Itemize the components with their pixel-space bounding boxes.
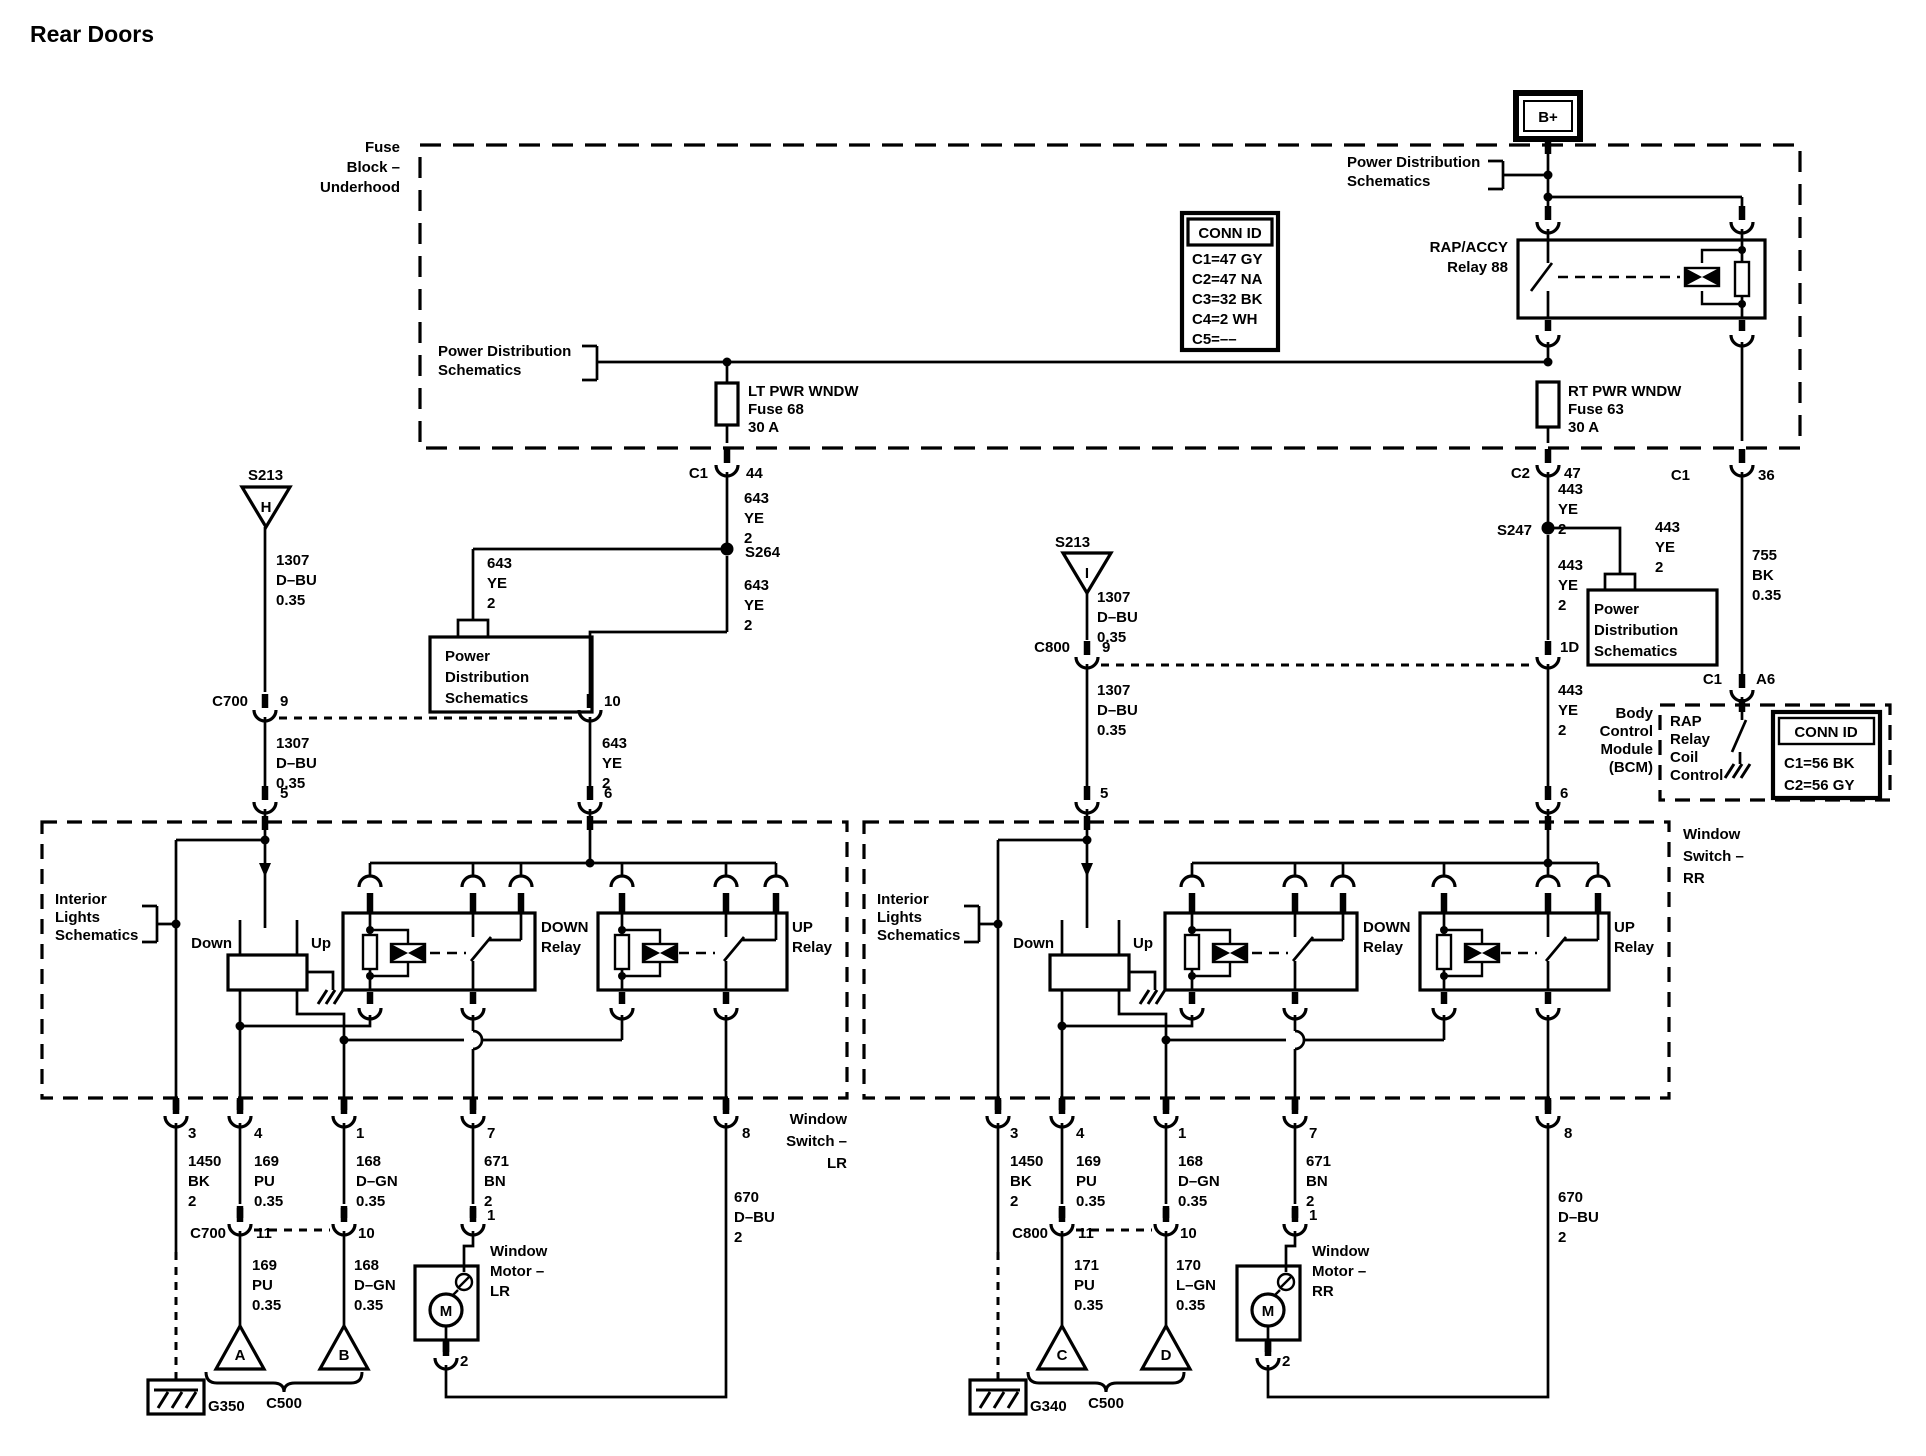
svg-text:D–GN: D–GN — [354, 1277, 396, 1294]
window-motor-rr: M — [1237, 1266, 1300, 1340]
splice-pack-s213-h: S213 H — [242, 467, 290, 527]
svg-text:443: 443 — [1558, 557, 1583, 574]
svg-text:1307: 1307 — [1097, 589, 1130, 606]
svg-text:YE: YE — [1558, 577, 1578, 594]
svg-text:Switch –: Switch – — [786, 1133, 847, 1150]
svg-text:Down: Down — [1013, 935, 1054, 952]
ground-icon-g340 — [970, 1380, 1026, 1414]
svg-text:H: H — [261, 499, 272, 516]
svg-text:Down: Down — [191, 935, 232, 952]
svg-text:UP: UP — [1614, 919, 1635, 936]
svg-text:Block –: Block – — [347, 159, 400, 176]
svg-text:YE: YE — [1655, 539, 1675, 556]
svg-text:11: 11 — [1078, 1225, 1094, 1242]
svg-text:D–BU: D–BU — [1558, 1209, 1599, 1226]
svg-text:S247: S247 — [1497, 522, 1532, 539]
svg-text:Schematics: Schematics — [1347, 173, 1430, 190]
pin-36: 36 — [1758, 467, 1775, 484]
svg-text:C500: C500 — [266, 1395, 302, 1412]
svg-text:RR: RR — [1312, 1283, 1334, 1300]
svg-text:0.35: 0.35 — [252, 1297, 281, 1314]
connector-c800-label: C800 — [1034, 639, 1070, 656]
svg-text:Fuse 68: Fuse 68 — [748, 401, 804, 418]
pin-9: 9 — [1102, 639, 1110, 656]
bcm: Body Control Module (BCM) RAP Relay Coil… — [1600, 705, 1890, 800]
svg-text:BN: BN — [1306, 1173, 1328, 1190]
pin-5: 5 — [280, 785, 288, 802]
svg-text:Power: Power — [445, 648, 490, 665]
c500-brace — [206, 1372, 362, 1392]
down-relay-lr — [343, 913, 535, 990]
svg-text:Switch –: Switch – — [1683, 848, 1744, 865]
svg-text:(BCM): (BCM) — [1609, 759, 1653, 776]
svg-text:1307: 1307 — [276, 735, 309, 752]
svg-text:Relay: Relay — [1363, 939, 1404, 956]
page-title: Rear Doors — [30, 21, 154, 47]
svg-text:B: B — [339, 1347, 350, 1364]
svg-text:Schematics: Schematics — [445, 690, 528, 707]
svg-text:2: 2 — [487, 595, 495, 612]
svg-text:RT PWR WNDW: RT PWR WNDW — [1568, 383, 1682, 400]
svg-text:168: 168 — [1178, 1153, 1203, 1170]
svg-text:Distribution: Distribution — [445, 669, 529, 686]
svg-text:S213: S213 — [248, 467, 283, 484]
svg-text:643: 643 — [602, 735, 627, 752]
svg-text:PU: PU — [1076, 1173, 1097, 1190]
svg-text:0.35: 0.35 — [1076, 1193, 1105, 1210]
svg-text:670: 670 — [1558, 1189, 1583, 1206]
svg-text:C5=––: C5=–– — [1192, 331, 1237, 348]
up-relay-blade — [724, 937, 744, 961]
svg-text:D–BU: D–BU — [276, 755, 317, 772]
svg-text:BN: BN — [484, 1173, 506, 1190]
svg-text:643: 643 — [744, 490, 769, 507]
svg-text:Interior: Interior — [877, 891, 929, 908]
pin-47: 47 — [1564, 465, 1581, 482]
svg-text:C2=47 NA: C2=47 NA — [1192, 271, 1263, 288]
svg-text:L–GN: L–GN — [1176, 1277, 1216, 1294]
pin-a6: A6 — [1756, 671, 1775, 688]
svg-text:443: 443 — [1655, 519, 1680, 536]
window-switch-rr: Window Switch – RR Interior Lights Schem… — [864, 816, 1744, 1142]
svg-text:170: 170 — [1176, 1257, 1201, 1274]
pin-9: 9 — [280, 693, 288, 710]
svg-text:443: 443 — [1558, 682, 1583, 699]
svg-text:Module: Module — [1601, 741, 1654, 758]
svg-text:670: 670 — [734, 1189, 759, 1206]
svg-text:Control: Control — [1670, 767, 1723, 784]
svg-text:Relay 88: Relay 88 — [1447, 259, 1508, 276]
svg-text:Motor –: Motor – — [1312, 1263, 1366, 1280]
svg-text:2: 2 — [1010, 1193, 1018, 1210]
svg-text:YE: YE — [487, 575, 507, 592]
svg-text:Window: Window — [490, 1243, 548, 1260]
svg-text:LR: LR — [490, 1283, 510, 1300]
svg-text:YE: YE — [744, 597, 764, 614]
svg-text:S264: S264 — [745, 544, 781, 561]
svg-text:D–BU: D–BU — [276, 572, 317, 589]
svg-text:Underhood: Underhood — [320, 179, 400, 196]
svg-text:1: 1 — [356, 1125, 364, 1142]
down-relay-coil-icon — [391, 944, 425, 962]
svg-text:169: 169 — [254, 1153, 279, 1170]
svg-text:2: 2 — [460, 1353, 468, 1370]
svg-text:Motor –: Motor – — [490, 1263, 544, 1280]
svg-text:443: 443 — [1558, 481, 1583, 498]
svg-text:2: 2 — [734, 1229, 742, 1246]
svg-text:168: 168 — [354, 1257, 379, 1274]
power-distribution-box-right: Power Distribution Schematics — [1588, 590, 1717, 665]
svg-text:755: 755 — [1752, 547, 1777, 564]
power-distribution-box-left: Power Distribution Schematics — [430, 637, 592, 712]
pin-10: 10 — [604, 693, 621, 710]
svg-text:30 A: 30 A — [748, 419, 779, 436]
bcm-ground-icon — [1725, 764, 1750, 778]
svg-text:Power: Power — [1594, 601, 1639, 618]
svg-text:DOWN: DOWN — [1363, 919, 1411, 936]
svg-text:CONN ID: CONN ID — [1794, 724, 1858, 741]
down-relay-blade — [471, 937, 491, 961]
svg-text:YE: YE — [744, 510, 764, 527]
feed-arrow-icon — [259, 863, 271, 877]
svg-text:Schematics: Schematics — [438, 362, 521, 379]
svg-text:C700: C700 — [190, 1225, 226, 1242]
svg-text:UP: UP — [792, 919, 813, 936]
svg-text:BK: BK — [188, 1173, 210, 1190]
svg-text:C1=47 GY: C1=47 GY — [1192, 251, 1262, 268]
svg-text:RAP: RAP — [1670, 713, 1702, 730]
svg-text:D–BU: D–BU — [734, 1209, 775, 1226]
svg-text:Fuse 63: Fuse 63 — [1568, 401, 1624, 418]
pin-1d: 1D — [1560, 639, 1579, 656]
svg-text:D–GN: D–GN — [356, 1173, 398, 1190]
svg-text:YE: YE — [1558, 501, 1578, 518]
svg-text:Distribution: Distribution — [1594, 622, 1678, 639]
svg-text:C1=56 BK: C1=56 BK — [1784, 755, 1855, 772]
down-relay-blade — [1293, 937, 1313, 961]
svg-text:RR: RR — [1683, 870, 1705, 887]
svg-text:2: 2 — [1282, 1353, 1290, 1370]
svg-text:C2=56 GY: C2=56 GY — [1784, 777, 1854, 794]
lr-bottom: 1450 BK 2 G350 169 PU 0.35 168 D–GN 0.35… — [148, 1123, 775, 1415]
c500-brace — [1028, 1372, 1184, 1392]
motor-m: M — [1262, 1303, 1275, 1320]
svg-text:8: 8 — [1564, 1125, 1572, 1142]
svg-text:C4=2 WH: C4=2 WH — [1192, 311, 1257, 328]
bcm-switch-blade — [1732, 720, 1746, 752]
svg-text:Schematics: Schematics — [1594, 643, 1677, 660]
svg-text:10: 10 — [358, 1225, 375, 1242]
diagram-title: Rear Doors — [30, 21, 154, 47]
svg-text:Relay: Relay — [541, 939, 582, 956]
svg-text:3: 3 — [1010, 1125, 1018, 1142]
svg-text:0.35: 0.35 — [276, 592, 305, 609]
conn-id-bcm: CONN ID C1=56 BK C2=56 GY — [1773, 712, 1880, 798]
svg-text:671: 671 — [484, 1153, 509, 1170]
svg-text:0.35: 0.35 — [1176, 1297, 1205, 1314]
svg-text:11: 11 — [256, 1225, 272, 1242]
relay-coil-icon — [1685, 268, 1719, 286]
svg-text:PU: PU — [252, 1277, 273, 1294]
svg-text:YE: YE — [1558, 702, 1578, 719]
svg-text:1: 1 — [487, 1207, 495, 1224]
svg-text:1450: 1450 — [188, 1153, 221, 1170]
battery-terminal: B+ — [1516, 93, 1580, 139]
svg-text:2: 2 — [1558, 521, 1566, 538]
svg-text:2: 2 — [188, 1193, 196, 1210]
svg-text:2: 2 — [1558, 597, 1566, 614]
svg-text:YE: YE — [602, 755, 622, 772]
svg-text:Coil: Coil — [1670, 749, 1698, 766]
svg-text:3: 3 — [188, 1125, 196, 1142]
svg-text:Window: Window — [1312, 1243, 1370, 1260]
switch-ground-icon — [1140, 990, 1165, 1004]
svg-text:Body: Body — [1616, 705, 1654, 722]
svg-text:0.35: 0.35 — [254, 1193, 283, 1210]
svg-text:Up: Up — [311, 935, 331, 952]
svg-text:C3=32 BK: C3=32 BK — [1192, 291, 1263, 308]
svg-text:Interior: Interior — [55, 891, 107, 908]
svg-text:171: 171 — [1074, 1257, 1099, 1274]
svg-text:2: 2 — [744, 617, 752, 634]
rap-accy-relay: RAP/ACCY Relay 88 — [1430, 239, 1765, 318]
breaker-icon — [1280, 1276, 1292, 1288]
svg-text:1: 1 — [1309, 1207, 1317, 1224]
svg-text:D–BU: D–BU — [1097, 609, 1138, 626]
svg-text:BK: BK — [1010, 1173, 1032, 1190]
svg-text:Window: Window — [790, 1111, 848, 1128]
relay-label: RAP/ACCY — [1430, 239, 1508, 256]
svg-text:10: 10 — [1180, 1225, 1197, 1242]
fuse-block-label: Fuse — [365, 139, 400, 156]
svg-text:A: A — [235, 1347, 246, 1364]
svg-text:PU: PU — [1074, 1277, 1095, 1294]
svg-text:Up: Up — [1133, 935, 1153, 952]
connector-c1-label: C1 — [689, 465, 708, 482]
svg-text:LT PWR WNDW: LT PWR WNDW — [748, 383, 859, 400]
svg-text:0.35: 0.35 — [1074, 1297, 1103, 1314]
breaker-icon — [458, 1276, 470, 1288]
pin-6: 6 — [604, 785, 612, 802]
svg-text:4: 4 — [1076, 1125, 1085, 1142]
svg-text:0.35: 0.35 — [1752, 587, 1781, 604]
down-relay-coil-icon — [1213, 944, 1247, 962]
svg-text:Lights: Lights — [877, 909, 922, 926]
svg-text:643: 643 — [487, 555, 512, 572]
svg-text:Power Distribution: Power Distribution — [1347, 154, 1480, 171]
up-relay-blade — [1546, 937, 1566, 961]
svg-text:0.35: 0.35 — [1097, 722, 1126, 739]
interior-lights-ref-rr: Interior Lights Schematics — [877, 891, 998, 944]
power-distribution-ref-left: Power Distribution Schematics — [438, 343, 597, 380]
svg-text:LR: LR — [827, 1155, 847, 1172]
svg-text:671: 671 — [1306, 1153, 1331, 1170]
rocker-switch-lr: Down Up — [191, 920, 343, 1004]
switch-ground-icon — [318, 990, 343, 1004]
svg-text:DOWN: DOWN — [541, 919, 589, 936]
svg-text:643: 643 — [744, 577, 769, 594]
svg-text:I: I — [1085, 565, 1089, 582]
up-relay-coil-icon — [1465, 944, 1499, 962]
svg-text:C: C — [1057, 1347, 1068, 1364]
svg-text:Schematics: Schematics — [55, 927, 138, 944]
svg-text:Relay: Relay — [792, 939, 833, 956]
interior-lights-ref-lr: Interior Lights Schematics — [55, 891, 176, 944]
rocker-switch-rr: Down Up — [1013, 920, 1165, 1004]
svg-text:C800: C800 — [1012, 1225, 1048, 1242]
svg-text:Window: Window — [1683, 826, 1741, 843]
ground-icon-g350 — [148, 1380, 204, 1414]
pin-6: 6 — [1560, 785, 1568, 802]
svg-text:168: 168 — [356, 1153, 381, 1170]
svg-text:S213: S213 — [1055, 534, 1090, 551]
motor-m: M — [440, 1303, 453, 1320]
svg-text:1: 1 — [1178, 1125, 1186, 1142]
conn-id-header: CONN ID — [1198, 225, 1262, 242]
up-relay-lr — [598, 913, 787, 990]
rt-pwr-wndw-fuse: RT PWR WNDW Fuse 63 30 A — [1537, 382, 1682, 443]
relay-resistor-icon — [1735, 262, 1749, 296]
svg-text:Schematics: Schematics — [877, 927, 960, 944]
up-relay-coil-icon — [643, 944, 677, 962]
pin-44: 44 — [746, 465, 763, 482]
svg-text:B+: B+ — [1538, 109, 1558, 126]
lt-pwr-wndw-fuse: LT PWR WNDW Fuse 68 30 A — [716, 362, 859, 443]
svg-text:D: D — [1161, 1347, 1172, 1364]
svg-text:C1: C1 — [1703, 671, 1722, 688]
wiring-diagram: Rear Doors Fuse Block – Underhood B+ Pow… — [0, 0, 1926, 1456]
svg-text:1307: 1307 — [1097, 682, 1130, 699]
svg-text:D–GN: D–GN — [1178, 1173, 1220, 1190]
svg-text:7: 7 — [1309, 1125, 1317, 1142]
up-relay-rr — [1420, 913, 1609, 990]
conn-id-underhood: CONN ID C1=47 GY C2=47 NA C3=32 BK C4=2 … — [1182, 213, 1278, 350]
power-distribution-ref-top: Power Distribution Schematics — [1347, 154, 1553, 202]
svg-text:0.35: 0.35 — [356, 1193, 385, 1210]
svg-text:0.35: 0.35 — [354, 1297, 383, 1314]
rr-bottom: 1450 BK 2 G340 169 PU 0.35 168 D–GN 0.35… — [970, 1123, 1599, 1415]
svg-text:G350: G350 — [208, 1398, 245, 1415]
feed-arrow-icon — [1081, 863, 1093, 877]
svg-text:Control: Control — [1600, 723, 1653, 740]
connector-c2-label: C2 — [1511, 465, 1530, 482]
svg-text:1450: 1450 — [1010, 1153, 1043, 1170]
svg-text:C1: C1 — [1671, 467, 1690, 484]
down-relay-rr — [1165, 913, 1357, 990]
svg-text:Relay: Relay — [1614, 939, 1655, 956]
splice-pack-s213-i: S213 I — [1055, 534, 1111, 593]
window-motor-lr: M — [415, 1266, 478, 1340]
svg-text:2: 2 — [1655, 559, 1663, 576]
svg-text:Power Distribution: Power Distribution — [438, 343, 571, 360]
svg-text:1307: 1307 — [276, 552, 309, 569]
svg-text:2: 2 — [1558, 1229, 1566, 1246]
fuse-block-underhood: Fuse Block – Underhood B+ Power Distribu… — [320, 93, 1800, 448]
svg-text:Lights: Lights — [55, 909, 100, 926]
svg-text:Relay: Relay — [1670, 731, 1711, 748]
svg-text:169: 169 — [1076, 1153, 1101, 1170]
svg-text:4: 4 — [254, 1125, 263, 1142]
svg-text:BK: BK — [1752, 567, 1774, 584]
pin-5: 5 — [1100, 785, 1108, 802]
svg-text:7: 7 — [487, 1125, 495, 1142]
svg-text:0.35: 0.35 — [1178, 1193, 1207, 1210]
svg-text:G340: G340 — [1030, 1398, 1067, 1415]
svg-text:2: 2 — [1558, 722, 1566, 739]
connector-c700-label: C700 — [212, 693, 248, 710]
left-feed-circuit: C1 44 643 YE 2 S264 643 YE 2 Power Distr… — [212, 449, 781, 822]
svg-text:169: 169 — [252, 1257, 277, 1274]
relay-switch-blade — [1531, 263, 1552, 291]
window-switch-lr: Window Switch – LR Interior Lights Schem… — [42, 816, 847, 1172]
svg-text:C500: C500 — [1088, 1395, 1124, 1412]
svg-text:8: 8 — [742, 1125, 750, 1142]
svg-text:PU: PU — [254, 1173, 275, 1190]
svg-text:30 A: 30 A — [1568, 419, 1599, 436]
svg-text:D–BU: D–BU — [1097, 702, 1138, 719]
